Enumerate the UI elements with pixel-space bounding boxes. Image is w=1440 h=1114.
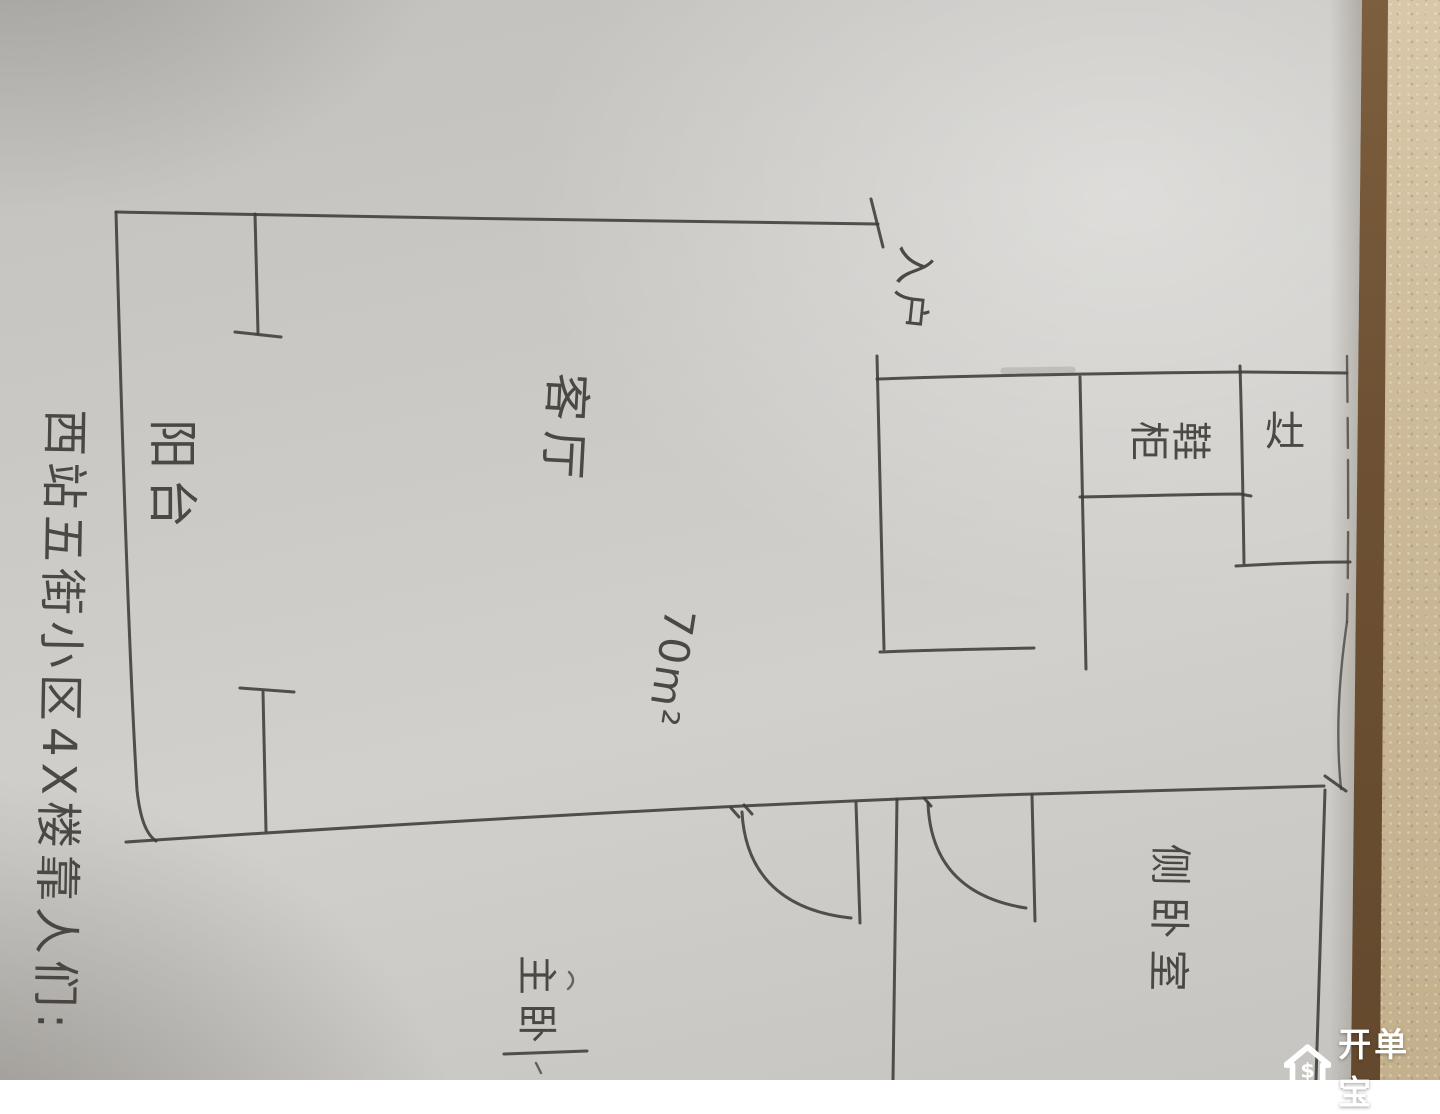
entrance-label: 入户: [881, 243, 948, 339]
master-bedroom-door: [731, 803, 860, 923]
watermark-text: 开单宝: [1338, 1018, 1440, 1114]
dollar-glyph: $: [1300, 1058, 1314, 1082]
bedroom-partition-walls: [893, 799, 897, 1080]
living-room-label: 客厅: [531, 371, 607, 491]
second-bedroom-door: [924, 795, 1035, 921]
balcony-divider-lower: [240, 688, 294, 831]
secondary-bedroom-label: 侧卧室: [1140, 843, 1204, 1003]
floor-plan-drawing: [0, 0, 1440, 1080]
stove-label: 灶: [1265, 399, 1305, 457]
shoe-cabinet-label: 鞋柜: [1128, 408, 1212, 466]
balcony-label: 阳台: [140, 419, 212, 537]
watermark: $ 开单宝: [1284, 1018, 1440, 1114]
house-dollar-icon: $: [1284, 1044, 1331, 1088]
master-bedroom-label: 主卧: [511, 955, 569, 1051]
right-edge-wall: [1316, 356, 1348, 1080]
stove-box: [1236, 562, 1350, 566]
outer-walls: [116, 199, 1324, 842]
side-note-label: 西站五街小区4X楼靠人们:: [24, 408, 104, 1035]
balcony-divider-upper: [235, 214, 281, 337]
